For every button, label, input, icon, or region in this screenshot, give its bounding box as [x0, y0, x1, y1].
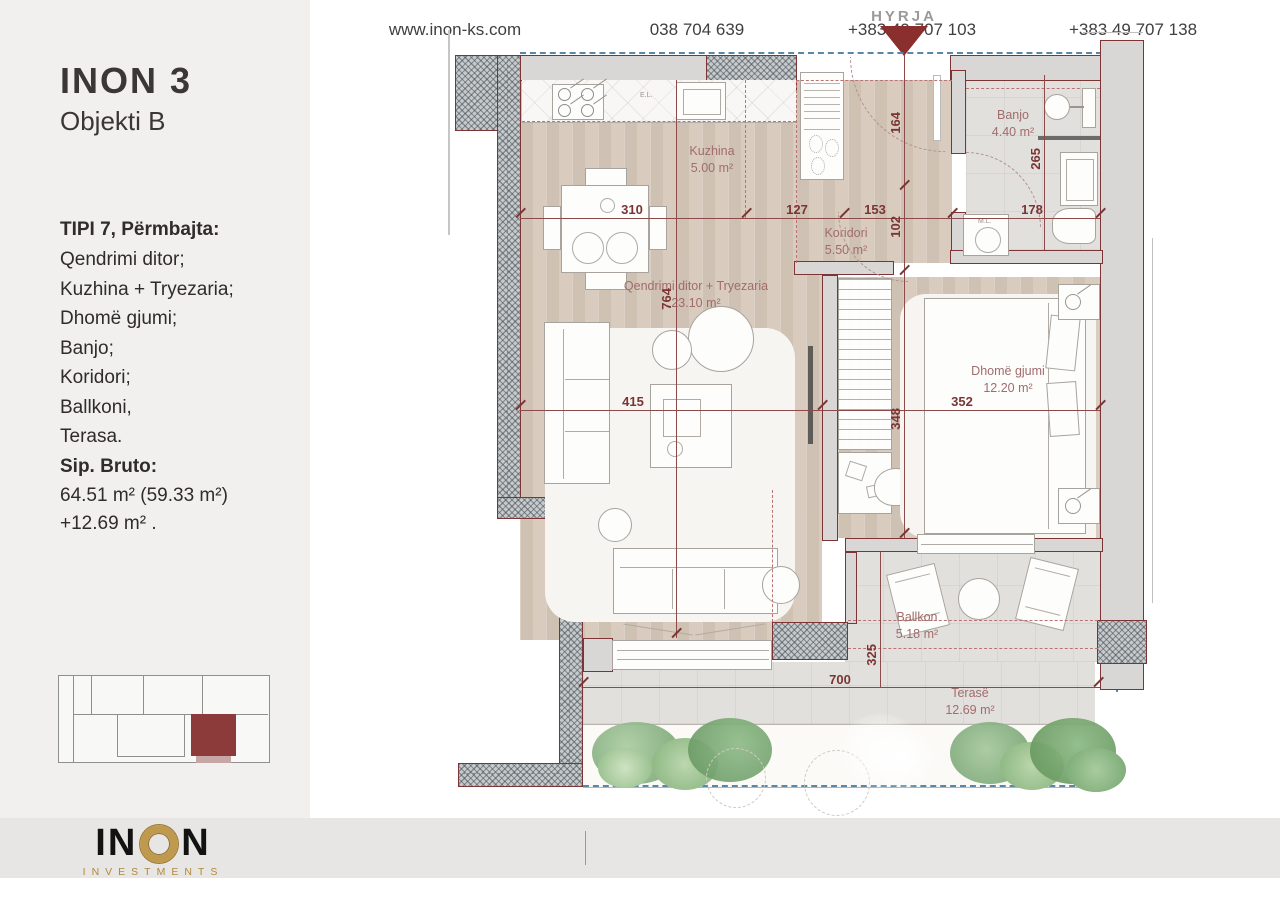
plant-pot [598, 508, 632, 542]
shower-column [1082, 88, 1096, 128]
shower-head [1044, 94, 1070, 120]
wall [583, 638, 613, 672]
wall [520, 55, 708, 81]
contents-item: Kuzhina + Tryezaria; [60, 275, 234, 305]
room-label-living: Qendrimi ditor + Tryezaria 23.10 m² [624, 278, 768, 312]
toilet [1052, 208, 1096, 244]
dining-table [561, 185, 649, 273]
white-plant [868, 728, 938, 788]
dim-living-width: 415 [622, 394, 644, 409]
dim-bedroom-height: 348 [888, 408, 903, 430]
wall-right [1100, 40, 1144, 690]
balcony-table [958, 578, 1000, 620]
room-label-kitchen: Kuzhina 5.00 m² [689, 143, 734, 177]
area-dash-line [745, 80, 746, 218]
area-dash-line [796, 80, 797, 263]
gross-area-heading: Sip. Bruto: [60, 452, 157, 482]
gross-area-value: 64.51 m² (59.33 m²) [60, 481, 228, 511]
logo-subtext: INVESTMENTS [73, 866, 233, 878]
phone-number-3: +383 49 707 138 [1069, 20, 1197, 40]
dim-corridor-left: 127 [786, 202, 808, 217]
sliding-door [612, 640, 772, 670]
area-dash-line [966, 88, 1100, 89]
dim-entry-depth: 164 [888, 112, 903, 134]
area-dash-line [522, 121, 796, 122]
hatched-wall-left [497, 55, 521, 499]
bathroom-sink [1060, 152, 1098, 206]
contents-heading: TIPI 7, Përmbajta: [60, 215, 219, 245]
company-logo: IN N INVESTMENTS [73, 822, 233, 878]
shower-partition [1038, 136, 1100, 140]
tv [808, 346, 813, 444]
guide-line [1152, 238, 1153, 603]
dim-corridor-depth: 102 [888, 216, 903, 238]
contents-item: Koridori; [60, 363, 234, 393]
logo-text-left: IN [95, 822, 137, 865]
wall [1033, 538, 1103, 552]
building-subtitle: Objekti B [60, 106, 166, 137]
phone-number-1: 038 704 639 [650, 20, 745, 40]
area-dash-line [848, 620, 1098, 621]
pillow [1046, 381, 1080, 437]
room-label-bedroom: Dhomë gjumi 12.20 m² [971, 363, 1045, 397]
pillow [1045, 315, 1080, 372]
plant-outline [706, 748, 766, 808]
dim-kitchen-width: 310 [621, 202, 643, 217]
dim-bathroom-depth: 265 [1028, 148, 1043, 170]
entry-cabinet [800, 72, 844, 180]
dimension-line [880, 552, 881, 687]
property-line-top [520, 52, 1102, 54]
area-dash-line [772, 490, 773, 622]
logo-text-right: N [181, 822, 210, 865]
wall [845, 538, 919, 552]
dim-terrace-width: 700 [829, 672, 851, 687]
wall-axis-dash [462, 773, 580, 774]
guide-line [448, 30, 450, 235]
dim-balcony-depth: 325 [864, 644, 879, 666]
dimension-line [676, 80, 677, 638]
contents-item: Qendrimi ditor; [60, 245, 234, 275]
ceiling-light-symbol [1058, 284, 1100, 320]
contents-item: Banjo; [60, 334, 234, 364]
wall [951, 70, 966, 154]
wall-axis-dash [507, 60, 508, 494]
contents-item: Terasa. [60, 422, 234, 452]
website-link: www.inon-ks.com [389, 20, 521, 40]
wall [950, 55, 1102, 81]
building-locator-map [58, 675, 270, 763]
hatched-column [1097, 620, 1147, 664]
sofa-vertical [544, 322, 610, 484]
wall [845, 552, 857, 624]
stove [552, 84, 604, 120]
bedroom-window [917, 534, 1035, 554]
kitchen-sink [676, 82, 726, 120]
entrance-label: HYRJA [864, 8, 944, 25]
plant [1066, 748, 1126, 792]
contents-item: Ballkoni, [60, 393, 234, 423]
hatched-wall-bottom [458, 763, 583, 787]
dim-bedroom-width: 352 [951, 394, 973, 409]
plant [598, 748, 652, 788]
dining-chair [585, 168, 627, 186]
dimension-line [520, 410, 1100, 411]
dimension-line [583, 687, 1100, 688]
electrical-annotation: E.L. [640, 92, 652, 99]
logo-ring-icon [140, 825, 178, 863]
dimension-line [520, 218, 1100, 219]
plant-pot [652, 330, 692, 370]
pouf [762, 566, 800, 604]
dim-corridor-mid: 153 [864, 202, 886, 217]
terrace-area-value: +12.69 m² . [60, 509, 157, 539]
footer-divider [585, 831, 586, 865]
room-label-balcony: Ballkon 5.18 m² [896, 609, 938, 643]
contents-item: Dhomë gjumi; [60, 304, 234, 334]
wardrobe [838, 278, 892, 450]
coffee-table [650, 384, 732, 468]
dim-living-height: 764 [659, 288, 674, 310]
shower-arm [1070, 106, 1084, 108]
project-title: INON 3 [60, 60, 192, 102]
room-label-terrace: Terasë 12.69 m² [945, 685, 994, 719]
wall [822, 275, 838, 541]
sofa-horizontal [613, 548, 778, 614]
hatched-column [772, 622, 848, 660]
area-dash-line [848, 648, 1098, 649]
dimension-line [904, 55, 905, 538]
plant-pot [688, 306, 754, 372]
room-label-bathroom: Banjo 4.40 m² [992, 107, 1034, 141]
contents-list: Qendrimi ditor; Kuzhina + Tryezaria; Dho… [60, 245, 234, 452]
guide-line [1083, 32, 1143, 33]
dining-chair [585, 272, 627, 290]
dining-chair [649, 206, 667, 250]
sidebar: INON 3 Objekti B TIPI 7, Përmbajta: Qend… [0, 0, 310, 818]
highlighted-unit-terrace [196, 756, 231, 763]
dimension-line [1044, 75, 1045, 250]
ceiling-light-symbol [1058, 488, 1100, 524]
dining-chair [543, 206, 561, 250]
dim-bathroom-width: 178 [1021, 202, 1043, 217]
highlighted-unit [191, 714, 236, 756]
brochure-page: INON 3 Objekti B TIPI 7, Përmbajta: Qend… [0, 0, 1280, 901]
